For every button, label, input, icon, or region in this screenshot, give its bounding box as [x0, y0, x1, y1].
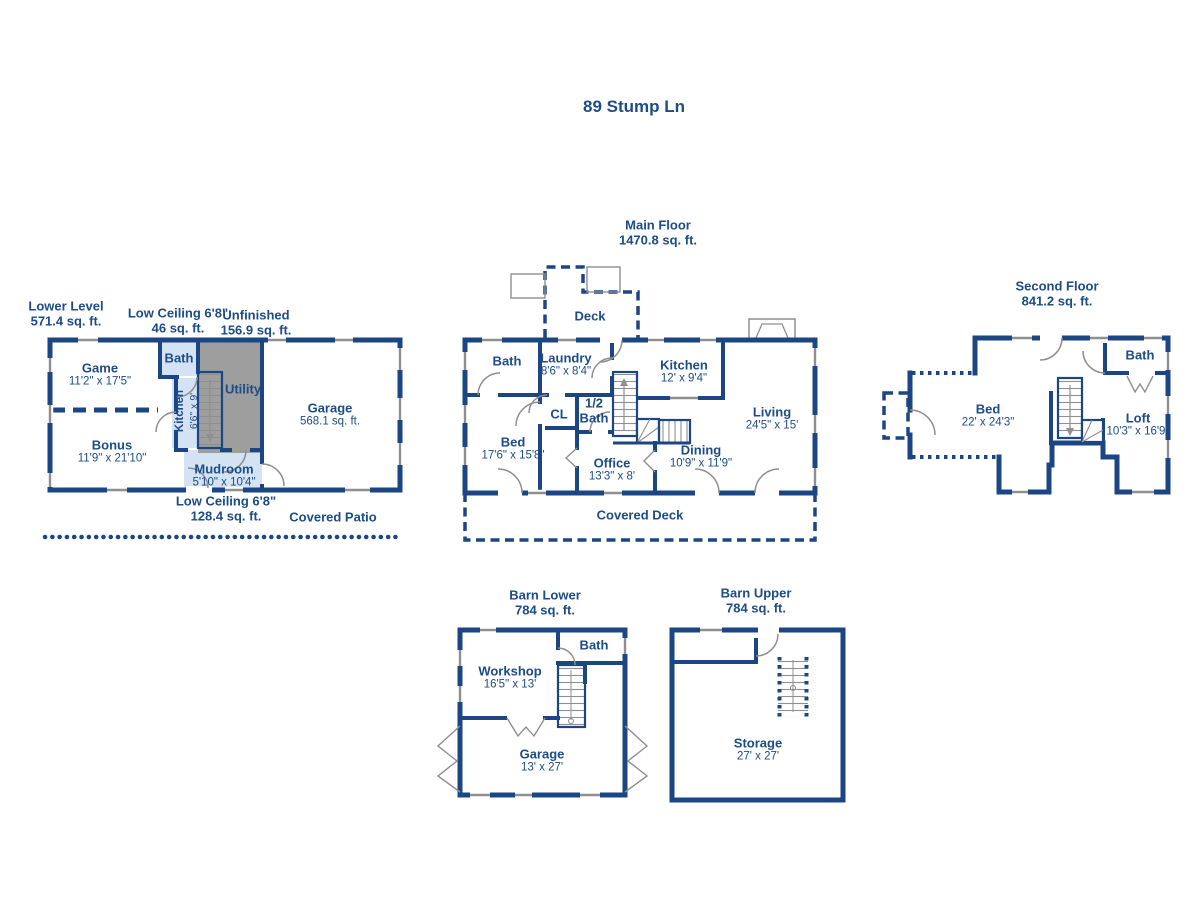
barn-upper-header: Barn Upper 784 sq. ft. — [721, 586, 792, 617]
room-label-bath-lower: Bath — [165, 350, 194, 365]
annotation-covered-patio: Covered Patio — [289, 509, 376, 524]
second-floor-header: Second Floor 841.2 sq. ft. — [1015, 279, 1098, 310]
annotation-unfinished: Unfinished 156.9 sq. ft. — [221, 308, 292, 339]
lower-level-header: Lower Level 571.4 sq. ft. — [28, 299, 103, 330]
floorplan-page: 89 Stump Ln Lower Level 571.4 sq. ft. Lo… — [0, 0, 1200, 900]
room-label-storage: Storage 27' x 27' — [734, 736, 782, 765]
room-label-bonus: Bonus 11'9" x 21'10" — [78, 438, 147, 467]
room-label-bath-barn: Bath — [580, 637, 609, 652]
room-label-office: Office 13'3" x 8' — [589, 456, 635, 485]
main-floor-header: Main Floor 1470.8 sq. ft. — [619, 218, 697, 249]
room-label-utility: Utility — [225, 381, 261, 396]
room-label-deck: Deck — [574, 308, 605, 323]
garage-door-left — [438, 726, 460, 792]
plan-main-floor — [465, 267, 815, 540]
room-label-garage-lower: Garage 568.1 sq. ft. — [300, 401, 360, 430]
room-label-workshop: Workshop 16'5" x 13' — [478, 664, 541, 693]
deck-outline — [545, 267, 638, 338]
room-label-game: Game 11'2" x 17'5" — [69, 361, 131, 390]
room-label-cl: CL — [550, 406, 567, 421]
garage-door-right — [625, 726, 647, 792]
room-label-mudroom: Mudroom 5'10" x 10'4" — [192, 462, 255, 491]
deck-steps-top — [587, 267, 620, 292]
room-label-bed-second: Bed 22' x 24'3" — [962, 402, 1015, 431]
annotation-covered-deck: Covered Deck — [597, 507, 684, 522]
room-label-bed-main: Bed 17'6" x 15'8" — [481, 435, 544, 464]
bay-dashed-box — [884, 393, 908, 438]
room-label-half-bath: 1/2 Bath — [580, 396, 609, 427]
room-label-loft: Loft 10'3" x 16'9" — [1106, 411, 1169, 440]
plan-barn-upper — [672, 627, 843, 800]
barn-lower-header: Barn Lower 784 sq. ft. — [509, 588, 581, 619]
fireplace-icon — [749, 319, 795, 340]
room-label-laundry: Laundry 8'6" x 8'4" — [540, 351, 591, 380]
deck-steps-left — [511, 274, 545, 298]
door-arc — [756, 634, 778, 656]
annotation-low-ceiling-top: Low Ceiling 6'8" 46 sq. ft. — [128, 306, 228, 337]
room-label-kitchen-main: Kitchen 12' x 9'4" — [660, 358, 708, 387]
room-label-bath-main: Bath — [493, 353, 522, 368]
room-label-living: Living 24'5" x 15' — [746, 405, 799, 434]
page-title: 89 Stump Ln — [583, 97, 685, 117]
annotation-low-ceiling-bottom: Low Ceiling 6'8" 128.4 sq. ft. — [176, 494, 276, 525]
room-label-kitchen-lower: Kitchen 6'6" x 9' — [174, 390, 200, 432]
room-label-dining: Dining 10'9" x 11'9" — [670, 443, 732, 472]
room-label-garage-barn: Garage 13' x 27' — [520, 747, 565, 776]
room-label-bath-second: Bath — [1126, 347, 1155, 362]
floorplan-drawing — [0, 0, 1200, 900]
